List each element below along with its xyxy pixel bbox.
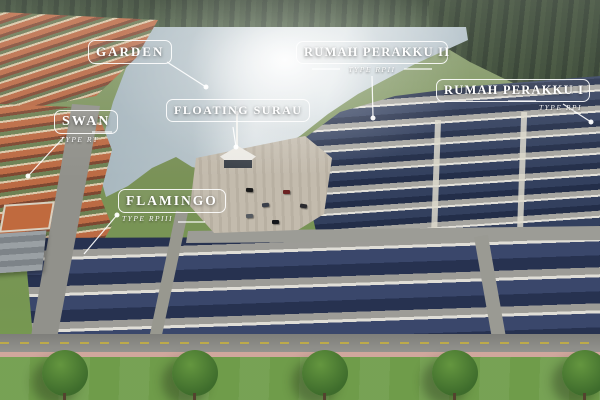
surau-leader-line: [233, 127, 236, 147]
aerial-development-render: GARDEN RUMAH PERAKKU II TYPE RPII RUMAH …: [0, 0, 600, 400]
garden-leader-line: [167, 62, 206, 87]
label-flamingo: FLAMINGO TYPE RPIII: [118, 189, 226, 223]
label-flamingo-type: TYPE RPIII: [122, 214, 226, 223]
label-swan-title: SWAN: [54, 110, 118, 134]
label-garden: GARDEN: [88, 40, 172, 64]
label-rumah-perakku-1-title: RUMAH PERAKKU I: [436, 79, 590, 102]
label-rumah-perakku-2-title: RUMAH PERAKKU II: [296, 41, 448, 64]
label-rumah-perakku-2: RUMAH PERAKKU II TYPE RPII: [296, 41, 448, 74]
label-garden-title: GARDEN: [88, 40, 172, 64]
label-floating-surau-title: FLOATING SURAU: [166, 99, 310, 122]
rumah-perakku-2-leader-dot: [371, 116, 376, 121]
surau-leader-dot: [234, 145, 239, 150]
label-swan-type: TYPE RT: [60, 135, 118, 144]
rumah-perakku-2-leader-line: [372, 76, 373, 117]
rumah-perakku-1-leader-dot: [589, 120, 594, 125]
label-floating-surau: FLOATING SURAU: [166, 99, 310, 122]
label-rumah-perakku-1-type: TYPE RPI: [436, 103, 582, 112]
garden-leader-dot: [204, 85, 209, 90]
label-rumah-perakku-1: RUMAH PERAKKU I TYPE RPI: [436, 79, 590, 112]
swan-leader-dot: [26, 174, 31, 179]
label-rumah-perakku-2-type: TYPE RPII: [296, 65, 448, 74]
flamingo-leader-line: [84, 215, 117, 254]
label-swan: SWAN TYPE RT: [54, 110, 118, 144]
label-flamingo-title: FLAMINGO: [118, 189, 226, 213]
